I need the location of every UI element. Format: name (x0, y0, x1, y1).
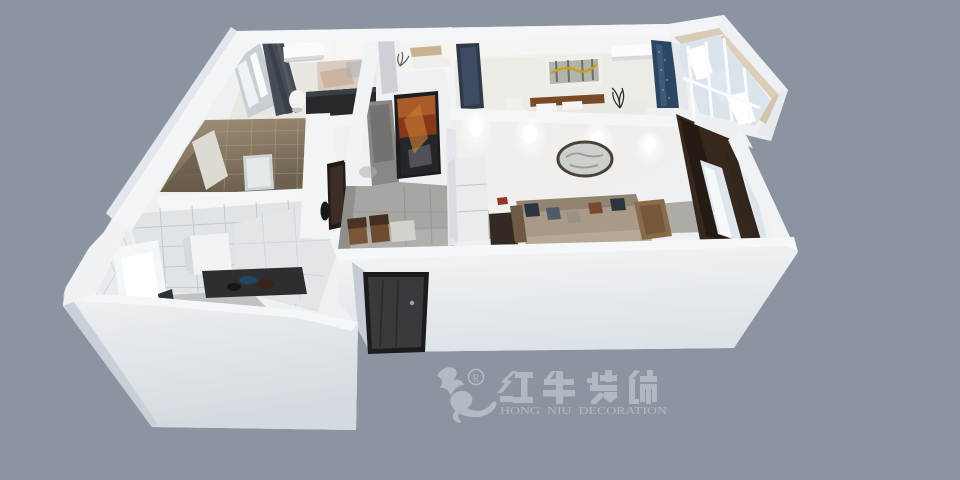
svg-text:R: R (472, 374, 479, 385)
svg-text:HONG NIU DECORATION: HONG NIU DECORATION (500, 405, 667, 417)
